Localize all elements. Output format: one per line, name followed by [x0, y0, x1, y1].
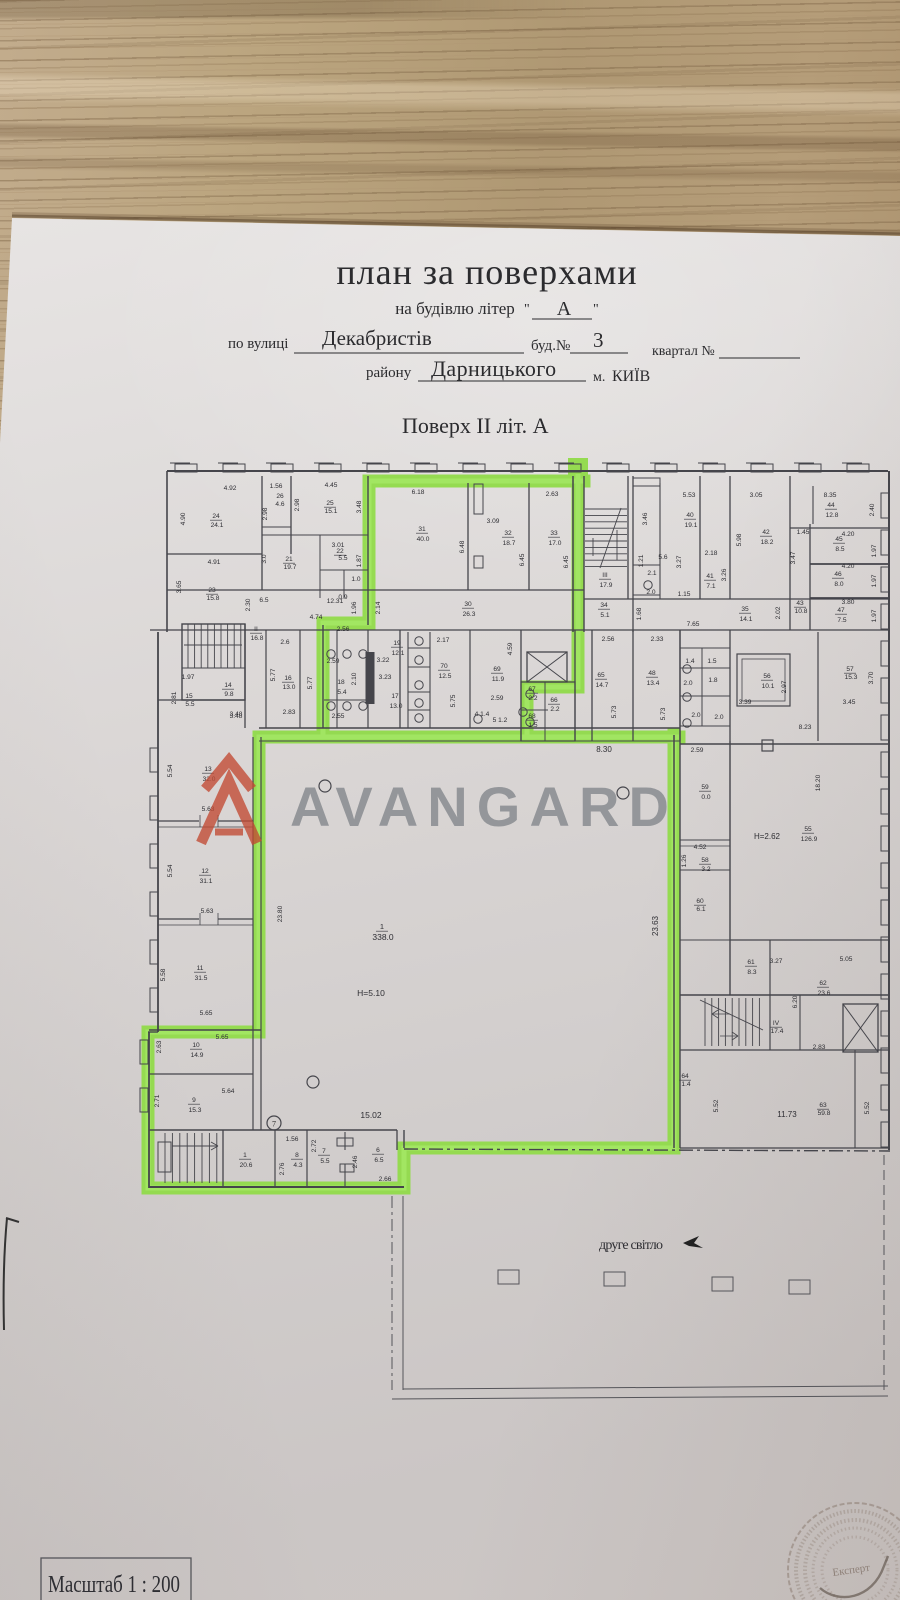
svg-text:60: 60	[696, 898, 704, 905]
svg-text:32: 32	[504, 530, 512, 537]
svg-text:3.09: 3.09	[487, 518, 500, 525]
svg-text:15.3: 15.3	[845, 674, 858, 681]
svg-text:3.23: 3.23	[379, 674, 392, 681]
svg-text:4.92: 4.92	[224, 485, 237, 492]
svg-text:6.5: 6.5	[259, 597, 268, 604]
svg-text:13.0: 13.0	[390, 703, 403, 710]
svg-text:46: 46	[834, 571, 842, 578]
svg-text:5.98: 5.98	[736, 533, 743, 546]
svg-text:24: 24	[212, 513, 220, 520]
svg-text:15.8: 15.8	[207, 595, 220, 602]
svg-text:7: 7	[272, 1120, 276, 1129]
svg-text:18: 18	[337, 679, 345, 686]
svg-text:2.59: 2.59	[491, 695, 504, 702]
svg-text:5.5: 5.5	[185, 701, 194, 708]
svg-text:4 1.4: 4 1.4	[475, 711, 490, 718]
svg-text:2.14: 2.14	[375, 601, 382, 614]
svg-text:338.0: 338.0	[372, 932, 394, 942]
svg-text:3.2: 3.2	[701, 866, 710, 873]
svg-text:59.8: 59.8	[818, 1110, 831, 1117]
svg-text:4.20: 4.20	[842, 563, 855, 570]
svg-text:12.1: 12.1	[392, 650, 405, 657]
svg-text:18.20: 18.20	[815, 774, 822, 791]
svg-text:12.31: 12.31	[327, 598, 344, 605]
svg-text:15.02: 15.02	[360, 1110, 382, 1120]
svg-text:AVANGARD: AVANGARD	[290, 775, 669, 838]
svg-text:3.22: 3.22	[377, 657, 390, 664]
svg-text:2.40: 2.40	[869, 503, 876, 516]
svg-text:12.8: 12.8	[826, 512, 839, 519]
svg-text:8.35: 8.35	[824, 492, 837, 499]
svg-text:А: А	[557, 298, 572, 320]
svg-text:13: 13	[204, 766, 212, 773]
svg-text:2.17: 2.17	[437, 637, 450, 644]
svg-text:43: 43	[796, 600, 804, 607]
svg-text:1.56: 1.56	[270, 483, 283, 490]
svg-text:11.73: 11.73	[777, 1110, 797, 1119]
svg-text:31.5: 31.5	[195, 975, 208, 982]
svg-text:2.2: 2.2	[528, 695, 537, 702]
svg-text:2.0: 2.0	[646, 589, 655, 596]
svg-text:4.45: 4.45	[325, 482, 338, 489]
svg-text:1.45: 1.45	[797, 529, 810, 536]
svg-text:2.0: 2.0	[683, 680, 692, 687]
svg-text:18.2: 18.2	[761, 539, 774, 546]
svg-text:48: 48	[648, 670, 656, 677]
svg-text:17: 17	[391, 693, 399, 700]
svg-text:1.4: 1.4	[681, 1081, 690, 1088]
svg-text:": "	[524, 302, 530, 317]
svg-text:4.52: 4.52	[694, 844, 707, 851]
svg-text:35: 35	[741, 606, 749, 613]
svg-text:квартал №: квартал №	[652, 344, 715, 359]
svg-text:1.4: 1.4	[685, 658, 694, 665]
svg-text:2.0: 2.0	[691, 712, 700, 719]
svg-text:5.75: 5.75	[450, 694, 457, 707]
svg-text:КИЇВ: КИЇВ	[612, 367, 650, 385]
svg-text:2.98: 2.98	[294, 498, 301, 511]
svg-text:5.63: 5.63	[201, 908, 214, 915]
svg-text:17.4: 17.4	[771, 1028, 784, 1035]
svg-text:61: 61	[747, 959, 755, 966]
svg-text:м.: м.	[593, 370, 605, 385]
svg-text:Дарницького: Дарницького	[431, 356, 557, 381]
svg-text:23: 23	[208, 587, 216, 594]
svg-text:2.63: 2.63	[156, 1040, 163, 1053]
svg-text:10.8: 10.8	[795, 608, 808, 615]
svg-text:6.20: 6.20	[792, 995, 799, 1008]
svg-text:1.5: 1.5	[707, 658, 716, 665]
svg-text:1.5: 1.5	[528, 722, 537, 729]
svg-text:5.77: 5.77	[307, 676, 314, 689]
svg-text:8.5: 8.5	[835, 546, 844, 553]
svg-text:23.63: 23.63	[651, 915, 660, 936]
svg-text:13.4: 13.4	[647, 680, 660, 687]
svg-text:8.0: 8.0	[834, 581, 843, 588]
svg-text:5 1.2: 5 1.2	[493, 717, 508, 724]
svg-text:4.6: 4.6	[275, 501, 284, 508]
svg-text:2.97: 2.97	[781, 680, 788, 693]
svg-text:5.54: 5.54	[167, 864, 174, 877]
svg-text:3: 3	[593, 328, 604, 352]
svg-text:3.46: 3.46	[642, 512, 649, 525]
svg-text:9.8: 9.8	[224, 691, 233, 698]
svg-text:41: 41	[706, 573, 714, 580]
svg-text:68: 68	[528, 713, 536, 720]
svg-text:8.3: 8.3	[747, 969, 756, 976]
svg-text:4.59: 4.59	[507, 642, 514, 655]
svg-text:34: 34	[600, 602, 608, 609]
svg-text:3.80: 3.80	[842, 599, 855, 606]
svg-text:26.3: 26.3	[463, 611, 476, 618]
svg-text:47: 47	[837, 607, 845, 614]
svg-text:30: 30	[464, 601, 472, 608]
svg-text:11.9: 11.9	[492, 676, 505, 683]
svg-text:21: 21	[285, 556, 293, 563]
svg-text:": "	[593, 302, 599, 317]
svg-text:5.73: 5.73	[660, 707, 667, 720]
svg-text:6.5: 6.5	[374, 1157, 383, 1164]
svg-text:17.0: 17.0	[549, 540, 562, 547]
svg-text:66: 66	[550, 697, 558, 704]
svg-text:25: 25	[326, 500, 334, 507]
svg-text:40: 40	[686, 512, 694, 519]
svg-text:3.0: 3.0	[261, 554, 268, 563]
svg-text:1.97: 1.97	[871, 609, 878, 622]
svg-text:14.1: 14.1	[740, 616, 753, 623]
svg-text:1: 1	[243, 1152, 247, 1159]
svg-text:4.74: 4.74	[310, 614, 323, 621]
svg-text:5.5: 5.5	[338, 555, 347, 562]
svg-text:1.8: 1.8	[708, 677, 717, 684]
svg-text:26: 26	[276, 493, 284, 500]
svg-text:11: 11	[197, 965, 204, 972]
svg-text:58: 58	[701, 857, 709, 864]
svg-text:2.2: 2.2	[550, 706, 559, 713]
svg-text:7.5: 7.5	[837, 617, 846, 624]
svg-text:1.87: 1.87	[356, 554, 363, 567]
svg-text:Експерт: Експерт	[832, 1562, 871, 1579]
svg-text:13.0: 13.0	[283, 684, 296, 691]
svg-text:5.77: 5.77	[270, 668, 277, 681]
svg-text:24.1: 24.1	[211, 522, 224, 529]
svg-text:4.20: 4.20	[842, 531, 855, 538]
svg-text:22: 22	[336, 548, 344, 555]
svg-text:64: 64	[681, 1073, 689, 1080]
svg-text:12: 12	[201, 868, 209, 875]
svg-text:56: 56	[763, 673, 771, 680]
svg-text:5.1: 5.1	[600, 612, 609, 619]
svg-text:1.68: 1.68	[636, 607, 643, 620]
svg-text:1.97: 1.97	[182, 674, 195, 681]
svg-text:H=2.62: H=2.62	[754, 832, 781, 841]
svg-text:2.56: 2.56	[337, 626, 350, 633]
svg-text:Декабристів: Декабристів	[322, 326, 432, 350]
svg-text:3.05: 3.05	[750, 492, 763, 499]
svg-text:10: 10	[192, 1042, 200, 1049]
svg-text:9: 9	[192, 1097, 196, 1104]
svg-text:3.48: 3.48	[230, 713, 243, 720]
svg-text:5.65: 5.65	[200, 1010, 213, 1017]
svg-text:23.6: 23.6	[818, 990, 831, 997]
svg-text:на будівлю літер: на будівлю літер	[395, 299, 515, 318]
svg-text:1.0: 1.0	[351, 576, 360, 583]
svg-text:2.66: 2.66	[379, 1176, 392, 1183]
svg-text:33: 33	[550, 530, 558, 537]
svg-text:4.90: 4.90	[180, 512, 187, 525]
svg-text:44: 44	[827, 502, 835, 509]
svg-text:12.5: 12.5	[439, 673, 452, 680]
svg-text:6.45: 6.45	[519, 553, 526, 566]
svg-text:III: III	[602, 572, 608, 579]
svg-text:3.47: 3.47	[790, 551, 797, 564]
svg-text:1.26: 1.26	[681, 854, 688, 867]
svg-text:59: 59	[701, 784, 709, 791]
svg-text:8.30: 8.30	[596, 745, 612, 754]
svg-text:16: 16	[284, 675, 292, 682]
svg-text:5.52: 5.52	[864, 1101, 871, 1114]
svg-text:62: 62	[819, 980, 827, 987]
svg-text:2.10: 2.10	[351, 672, 358, 685]
svg-text:7: 7	[322, 1148, 326, 1155]
svg-text:6.48: 6.48	[459, 540, 466, 553]
svg-text:друге світло: друге світло	[599, 1238, 663, 1253]
svg-text:15: 15	[185, 693, 193, 700]
svg-text:3.65: 3.65	[176, 580, 183, 593]
svg-text:14.9: 14.9	[191, 1052, 204, 1059]
svg-text:IV: IV	[773, 1020, 780, 1027]
svg-text:2.1: 2.1	[647, 570, 656, 577]
svg-text:7.65: 7.65	[687, 621, 700, 628]
svg-text:20.6: 20.6	[240, 1162, 253, 1169]
svg-text:15.1: 15.1	[325, 508, 338, 515]
svg-text:69: 69	[493, 666, 501, 673]
svg-text:1.15: 1.15	[678, 591, 691, 598]
svg-text:42: 42	[762, 529, 770, 536]
svg-text:3.70: 3.70	[868, 671, 875, 684]
svg-text:2.59: 2.59	[327, 658, 340, 665]
svg-text:5.6: 5.6	[658, 554, 667, 561]
svg-text:2.30: 2.30	[245, 598, 252, 611]
svg-text:району: району	[366, 365, 412, 381]
svg-text:40.0: 40.0	[417, 536, 430, 543]
svg-text:Масштаб 1 : 200: Масштаб 1 : 200	[48, 1572, 180, 1598]
svg-text:5.4: 5.4	[337, 689, 346, 696]
svg-text:2.55: 2.55	[332, 713, 345, 720]
svg-text:126.9: 126.9	[801, 836, 818, 843]
svg-text:2.63: 2.63	[546, 491, 559, 498]
svg-text:1.56: 1.56	[286, 1136, 299, 1143]
svg-text:1.97: 1.97	[871, 574, 878, 587]
svg-text:3.27: 3.27	[676, 555, 683, 568]
svg-text:по вулиці: по вулиці	[228, 336, 288, 352]
svg-text:2.98: 2.98	[262, 507, 269, 520]
svg-text:63: 63	[819, 1102, 827, 1109]
svg-text:2.59: 2.59	[691, 747, 704, 754]
svg-text:3.26: 3.26	[721, 568, 728, 581]
svg-text:6.45: 6.45	[563, 555, 570, 568]
svg-text:4.91: 4.91	[208, 559, 221, 566]
svg-text:4.3: 4.3	[293, 1162, 302, 1169]
svg-text:2.46: 2.46	[352, 1155, 359, 1168]
svg-text:2.71: 2.71	[154, 1094, 161, 1107]
svg-text:14.7: 14.7	[596, 682, 609, 689]
svg-text:план за поверхами: план за поверхами	[336, 252, 637, 292]
svg-text:5.52: 5.52	[713, 1099, 720, 1112]
svg-text:19.7: 19.7	[284, 564, 297, 571]
svg-text:2.02: 2.02	[775, 606, 782, 619]
svg-text:2.83: 2.83	[283, 709, 296, 716]
svg-text:2.81: 2.81	[171, 691, 178, 704]
svg-text:II: II	[254, 626, 258, 633]
svg-text:57: 57	[846, 666, 854, 673]
svg-text:15.3: 15.3	[189, 1107, 202, 1114]
svg-text:14: 14	[224, 682, 232, 689]
svg-text:2.76: 2.76	[279, 1162, 286, 1175]
svg-text:65: 65	[597, 672, 605, 679]
svg-text:1.96: 1.96	[351, 601, 358, 614]
svg-text:5.5: 5.5	[320, 1158, 329, 1165]
svg-text:8.23: 8.23	[799, 724, 812, 731]
svg-text:5.54: 5.54	[167, 764, 174, 777]
svg-text:буд.№: буд.№	[531, 338, 570, 354]
svg-text:2.6: 2.6	[280, 639, 289, 646]
svg-text:3.48: 3.48	[356, 500, 363, 513]
svg-text:18.7: 18.7	[503, 540, 516, 547]
svg-text:10.1: 10.1	[762, 683, 775, 690]
svg-text:16.8: 16.8	[251, 635, 264, 642]
svg-text:6.18: 6.18	[412, 489, 425, 496]
svg-text:5.65: 5.65	[216, 1034, 229, 1041]
svg-text:3.39: 3.39	[739, 699, 752, 706]
svg-text:2.83: 2.83	[813, 1044, 826, 1051]
svg-text:6.1: 6.1	[696, 906, 705, 913]
svg-text:2.18: 2.18	[705, 550, 718, 557]
svg-text:31: 31	[418, 526, 426, 533]
svg-text:23.80: 23.80	[277, 905, 284, 922]
svg-text:67: 67	[528, 686, 536, 693]
svg-text:17.9: 17.9	[600, 582, 613, 589]
svg-text:7.1: 7.1	[706, 583, 715, 590]
svg-text:70: 70	[440, 663, 448, 670]
svg-text:6: 6	[376, 1147, 380, 1154]
svg-text:H=5.10: H=5.10	[357, 988, 385, 998]
svg-text:5.58: 5.58	[160, 968, 167, 981]
svg-text:5.73: 5.73	[611, 705, 618, 718]
svg-text:8: 8	[295, 1152, 299, 1159]
svg-text:2.33: 2.33	[651, 636, 664, 643]
svg-text:5.05: 5.05	[840, 956, 853, 963]
svg-text:3.45: 3.45	[843, 699, 856, 706]
svg-text:1.97: 1.97	[871, 544, 878, 557]
svg-text:2.0: 2.0	[714, 714, 723, 721]
svg-text:2.72: 2.72	[311, 1139, 318, 1152]
svg-text:55: 55	[804, 826, 812, 833]
svg-text:31.1: 31.1	[200, 878, 213, 885]
svg-text:3.27: 3.27	[770, 958, 783, 965]
svg-text:2.56: 2.56	[602, 636, 615, 643]
svg-text:1.21: 1.21	[638, 554, 645, 567]
svg-text:0.0: 0.0	[701, 794, 710, 801]
svg-text:1: 1	[380, 922, 384, 931]
svg-text:5.64: 5.64	[222, 1088, 235, 1095]
svg-text:Поверх II літ. А: Поверх II літ. А	[402, 413, 549, 438]
svg-text:19.1: 19.1	[685, 522, 698, 529]
svg-text:5.53: 5.53	[683, 492, 696, 499]
svg-text:19: 19	[393, 640, 401, 647]
